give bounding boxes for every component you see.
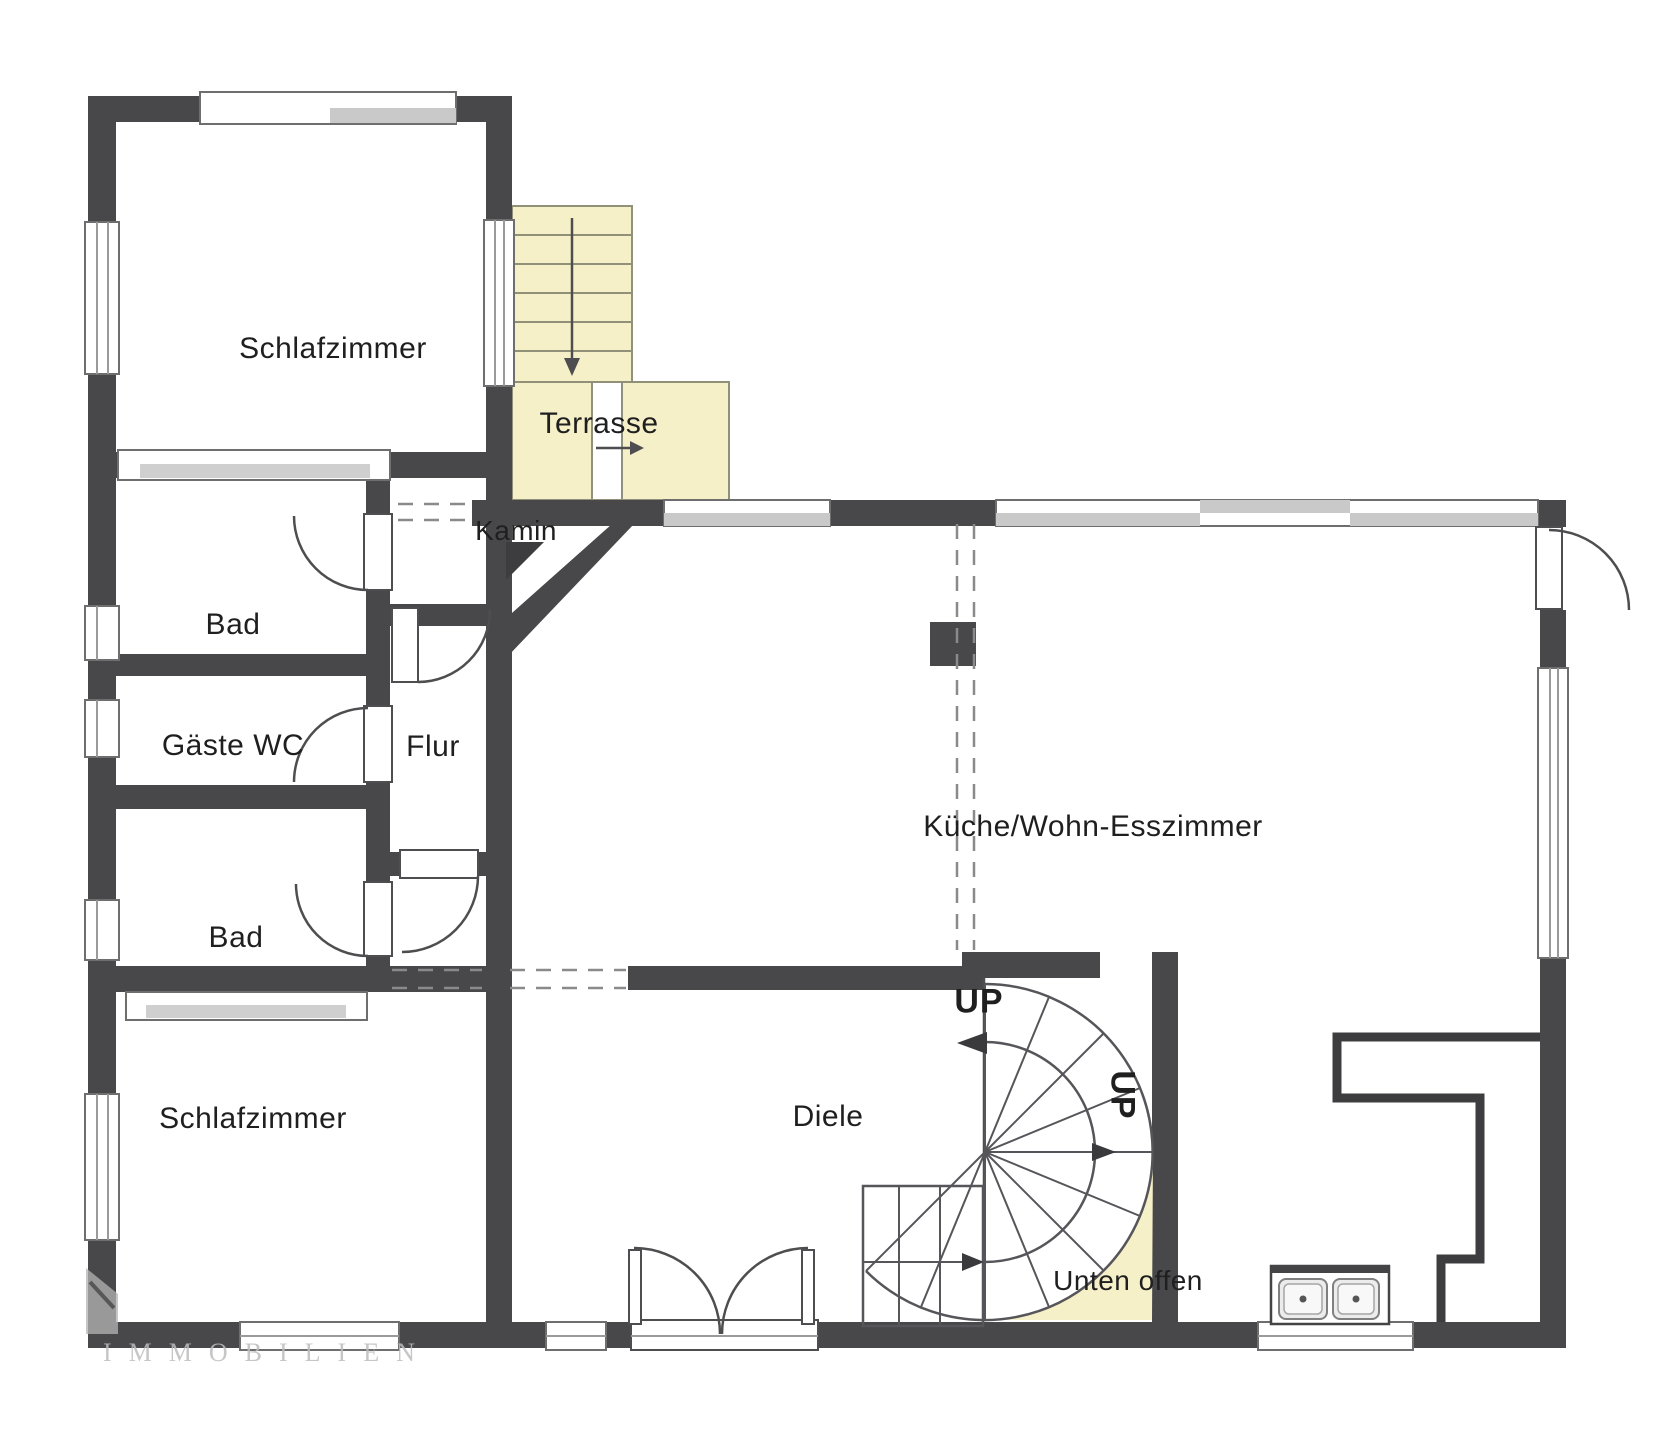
room-label-bad-top: Bad [206, 608, 261, 642]
label-unten-offen: Unten offen [1053, 1265, 1203, 1297]
room-label-terrasse: Terrasse [539, 407, 658, 441]
room-label-schlafzimmer-bottom: Schlafzimmer [159, 1102, 347, 1136]
stairs-up-label-top: UP [954, 983, 1003, 1022]
room-label-bad-bottom: Bad [209, 921, 264, 955]
room-label-diele: Diele [793, 1100, 864, 1134]
room-label-schlafzimmer-top: Schlafzimmer [239, 332, 427, 366]
floorplan-canvas: Schlafzimmer Terrasse Kamin Bad Gäste WC… [0, 0, 1659, 1440]
floorplan-labels: Schlafzimmer Terrasse Kamin Bad Gäste WC… [0, 0, 1659, 1440]
room-label-flur: Flur [406, 730, 460, 764]
label-kamin: Kamin [475, 515, 557, 547]
room-label-kueche: Küche/Wohn-Esszimmer [923, 810, 1263, 844]
room-label-gaeste-wc: Gäste WC [162, 729, 304, 763]
watermark-text: IMMOBILIEN [103, 1338, 432, 1368]
stairs-up-label-side: UP [1103, 1070, 1142, 1119]
